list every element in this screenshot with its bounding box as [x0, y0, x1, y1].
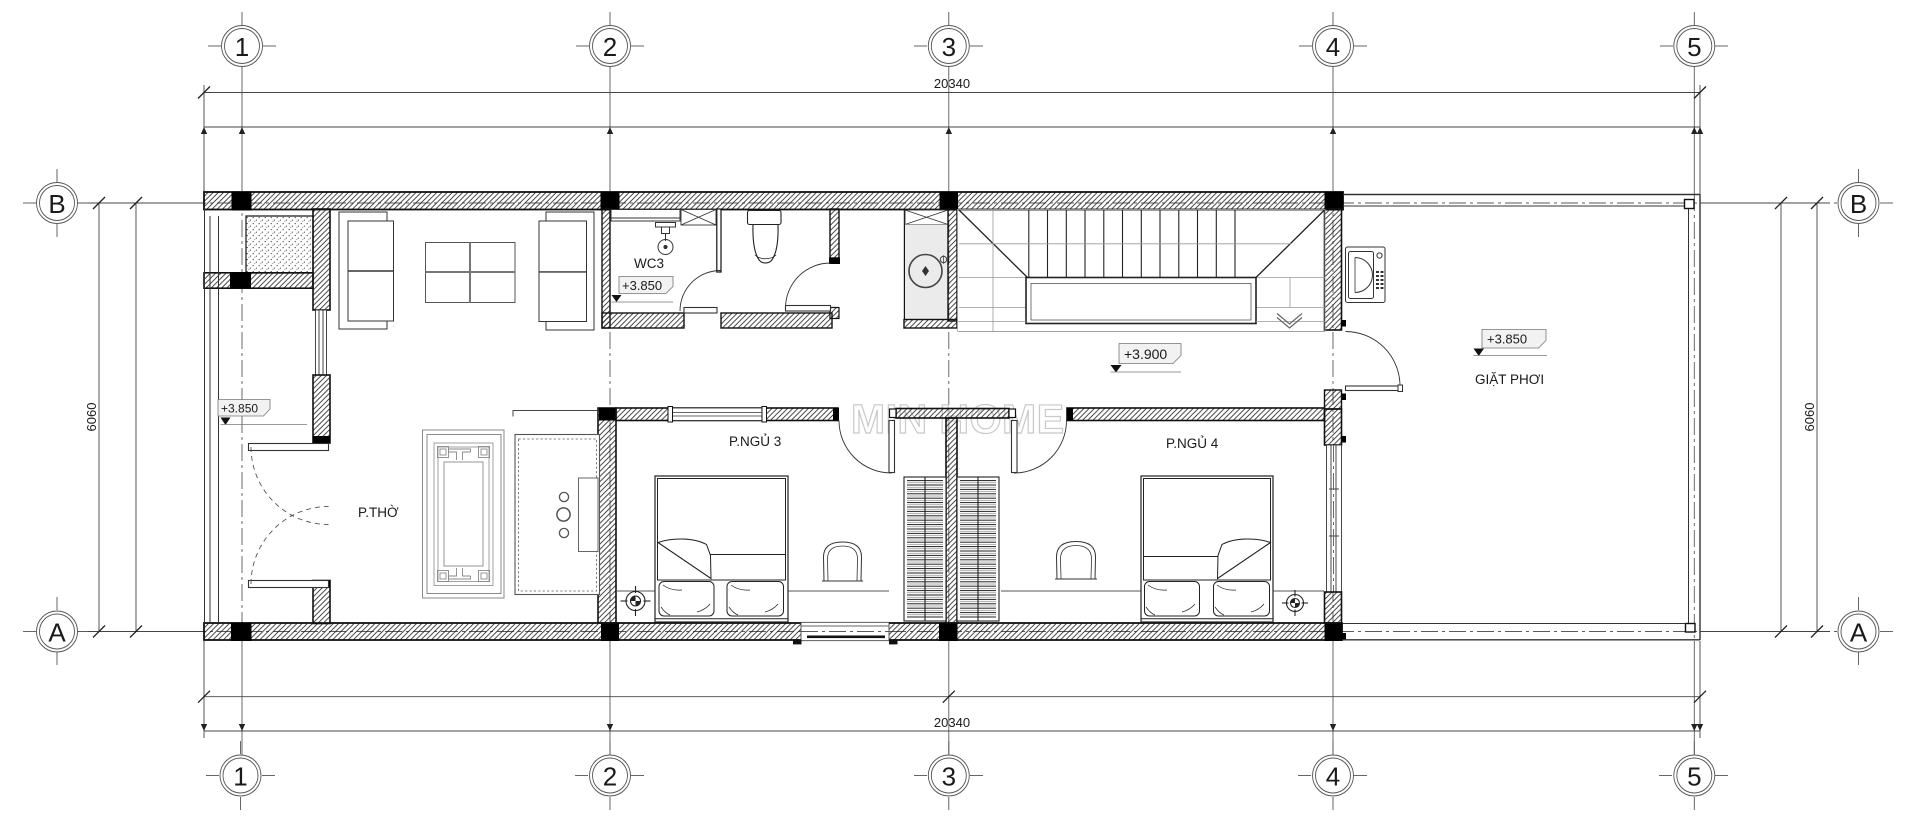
svg-text:+3.900: +3.900	[1124, 346, 1167, 362]
svg-text:1: 1	[233, 762, 247, 792]
svg-text:+3.850: +3.850	[1487, 332, 1527, 347]
svg-text:B: B	[1850, 189, 1867, 219]
svg-text:GIẶT PHƠI: GIẶT PHƠI	[1475, 372, 1544, 387]
svg-text:P.NGỦ 3: P.NGỦ 3	[729, 434, 781, 449]
svg-text:B: B	[48, 189, 65, 219]
svg-text:3: 3	[942, 762, 956, 792]
svg-text:P.THỜ: P.THỜ	[358, 505, 399, 520]
svg-text:+3.850: +3.850	[622, 278, 662, 293]
svg-text:6060: 6060	[84, 403, 99, 432]
svg-text:P.NGỦ 4: P.NGỦ 4	[1166, 436, 1219, 451]
svg-text:WC3: WC3	[634, 256, 664, 271]
svg-text:20340: 20340	[934, 715, 970, 730]
svg-text:A: A	[48, 618, 66, 648]
svg-text:5: 5	[1687, 32, 1701, 62]
svg-text:2: 2	[603, 32, 617, 62]
svg-text:3: 3	[942, 32, 956, 62]
svg-text:1: 1	[235, 32, 249, 62]
svg-text:5: 5	[1687, 762, 1701, 792]
svg-text:2: 2	[603, 762, 617, 792]
svg-text:20340: 20340	[934, 76, 970, 91]
svg-text:4: 4	[1326, 762, 1340, 792]
svg-text:A: A	[1850, 618, 1868, 648]
svg-text:4: 4	[1326, 32, 1340, 62]
svg-text:6060: 6060	[1802, 403, 1817, 432]
svg-text:+3.850: +3.850	[221, 402, 258, 416]
